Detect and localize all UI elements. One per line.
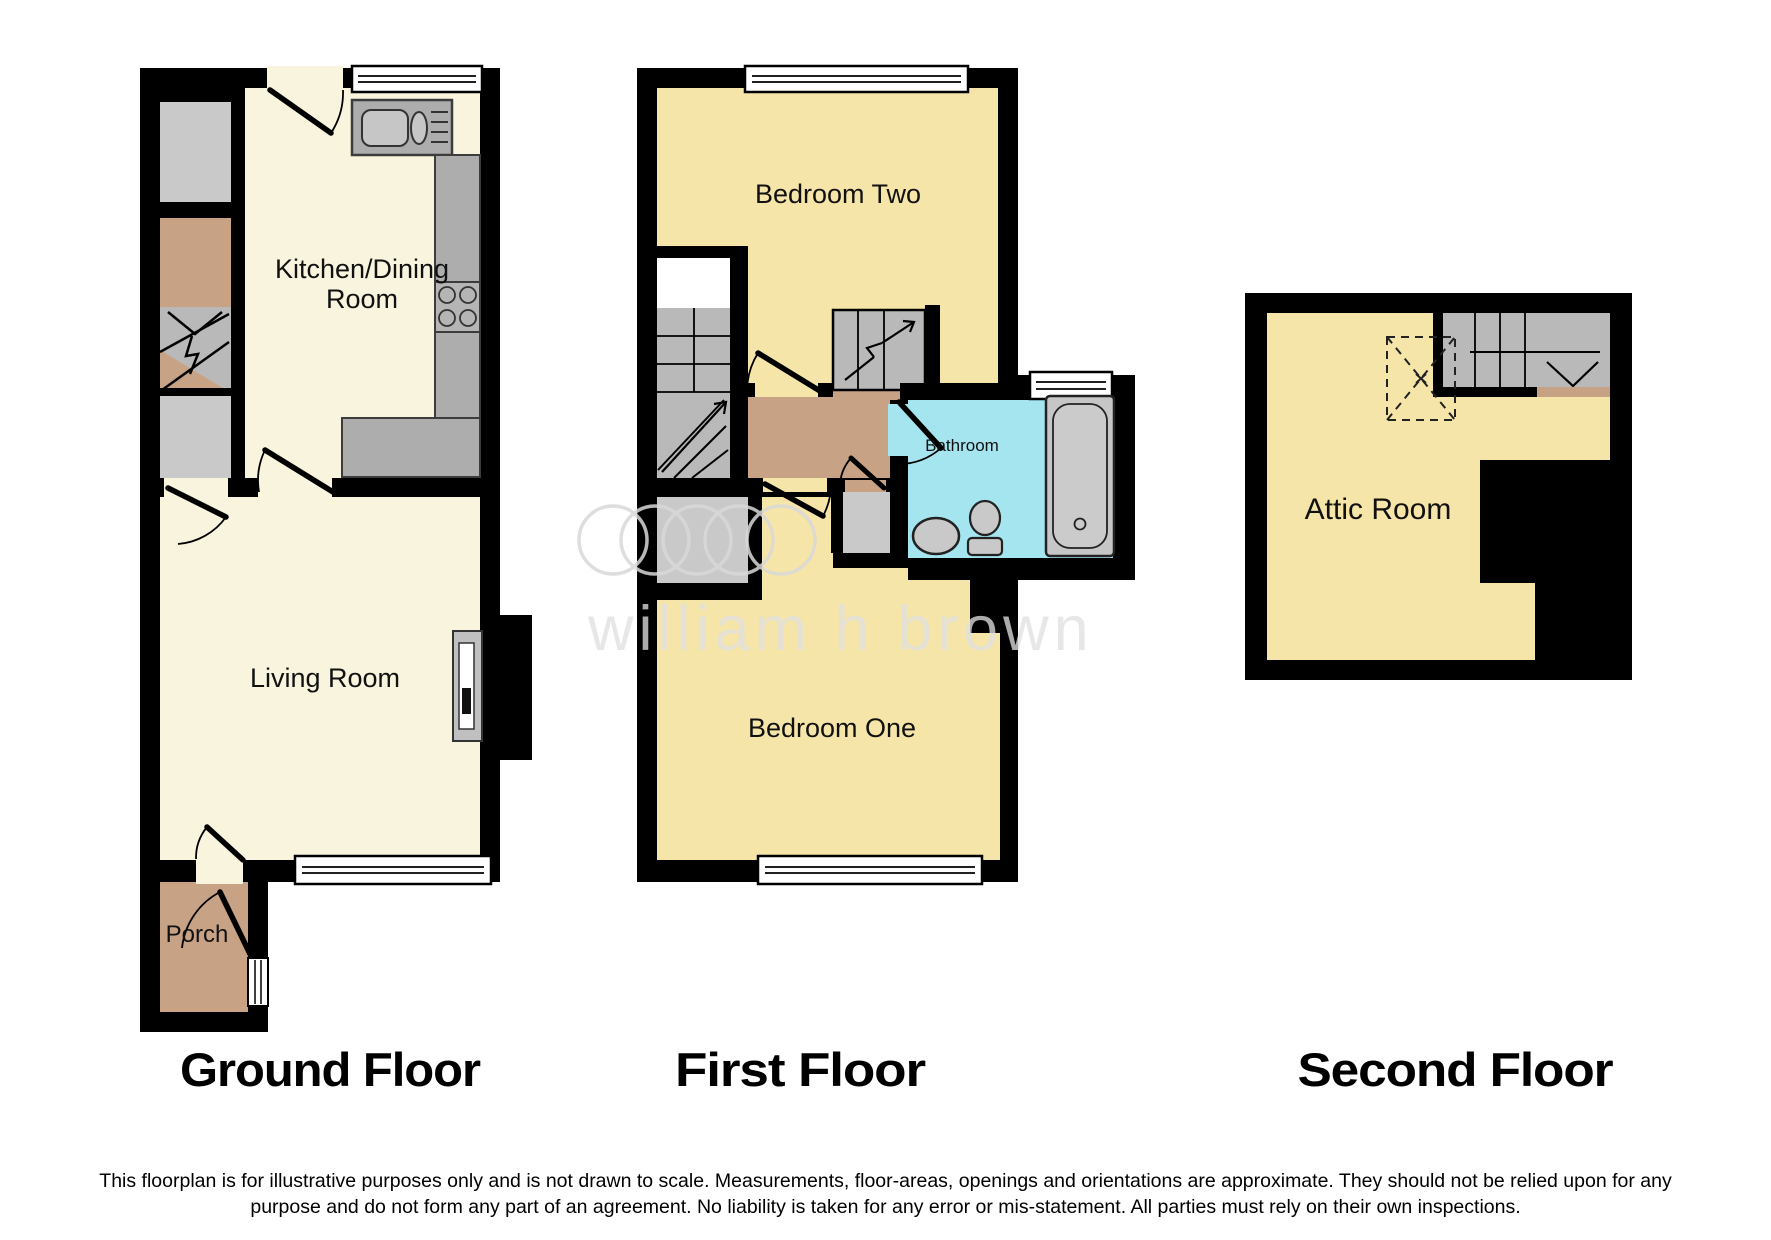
- ground-floor-plan: Kitchen/Dining Room Living Room Porch: [140, 66, 532, 1032]
- living-room-window: [295, 856, 491, 884]
- kitchen-exterior-door-opening: [267, 66, 343, 90]
- wall: [160, 388, 231, 396]
- cupboard-door-opening: [164, 478, 228, 497]
- understairs-cupboard: [160, 396, 231, 478]
- disclaimer-line2: purpose and do not form any part of an a…: [0, 1194, 1771, 1220]
- second-floor-label: Second Floor: [1298, 1043, 1614, 1096]
- living-room-label: Living Room: [250, 663, 400, 693]
- floorplan-page: Kitchen/Dining Room Living Room Porch: [0, 0, 1771, 1240]
- first-floor-staircase-down: [657, 308, 730, 478]
- ground-floor-staircase: [160, 307, 231, 390]
- bedroom-one-window: [758, 856, 982, 884]
- landing-area: [748, 390, 908, 478]
- kitchen-window: [352, 66, 482, 92]
- toilet: [968, 501, 1002, 555]
- kitchen-counter-bottom: [342, 418, 480, 477]
- hall-area: [160, 218, 231, 307]
- disclaimer-line1: This floorplan is for illustrative purpo…: [0, 1168, 1771, 1194]
- wall: [160, 88, 231, 102]
- second-floor-staircase: [1443, 313, 1610, 397]
- watermark-text: william h brown: [587, 594, 1094, 664]
- wall: [160, 202, 231, 218]
- wall: [231, 88, 245, 478]
- first-floor-plan: Bedroom Two Bathroom Bedroom One: [637, 66, 1135, 884]
- attic-room-label: Attic Room: [1305, 493, 1452, 526]
- first-floor-staircase-up: [833, 310, 925, 390]
- bedroom-one-label: Bedroom One: [748, 713, 916, 743]
- store-cupboard: [160, 102, 231, 202]
- basin: [913, 518, 959, 554]
- porch-door-opening: [196, 858, 243, 884]
- kitchen-label-line1: Kitchen/Dining: [275, 254, 449, 284]
- bedroom-two-window: [745, 66, 968, 92]
- bathroom-label: Bathroom: [925, 436, 999, 455]
- wall: [831, 492, 843, 553]
- bedroom-two-label: Bedroom Two: [755, 179, 921, 209]
- kitchen-sink-unit: [352, 100, 452, 155]
- kitchen-label-line2: Room: [326, 284, 398, 314]
- wall: [730, 246, 748, 478]
- airing-cupboard: [843, 492, 890, 553]
- stair-void: [657, 258, 730, 308]
- porch-label: Porch: [166, 921, 229, 948]
- second-floor-plan: Attic Room: [1245, 293, 1632, 680]
- wall: [900, 383, 1035, 400]
- first-floor-label: First Floor: [675, 1043, 926, 1096]
- bathtub: [1046, 396, 1114, 556]
- floorplan-canvas: Kitchen/Dining Room Living Room Porch: [0, 0, 1771, 1240]
- ground-floor-label: Ground Floor: [180, 1043, 481, 1096]
- fireplace: [453, 631, 482, 741]
- kitchen-hob: [435, 282, 480, 332]
